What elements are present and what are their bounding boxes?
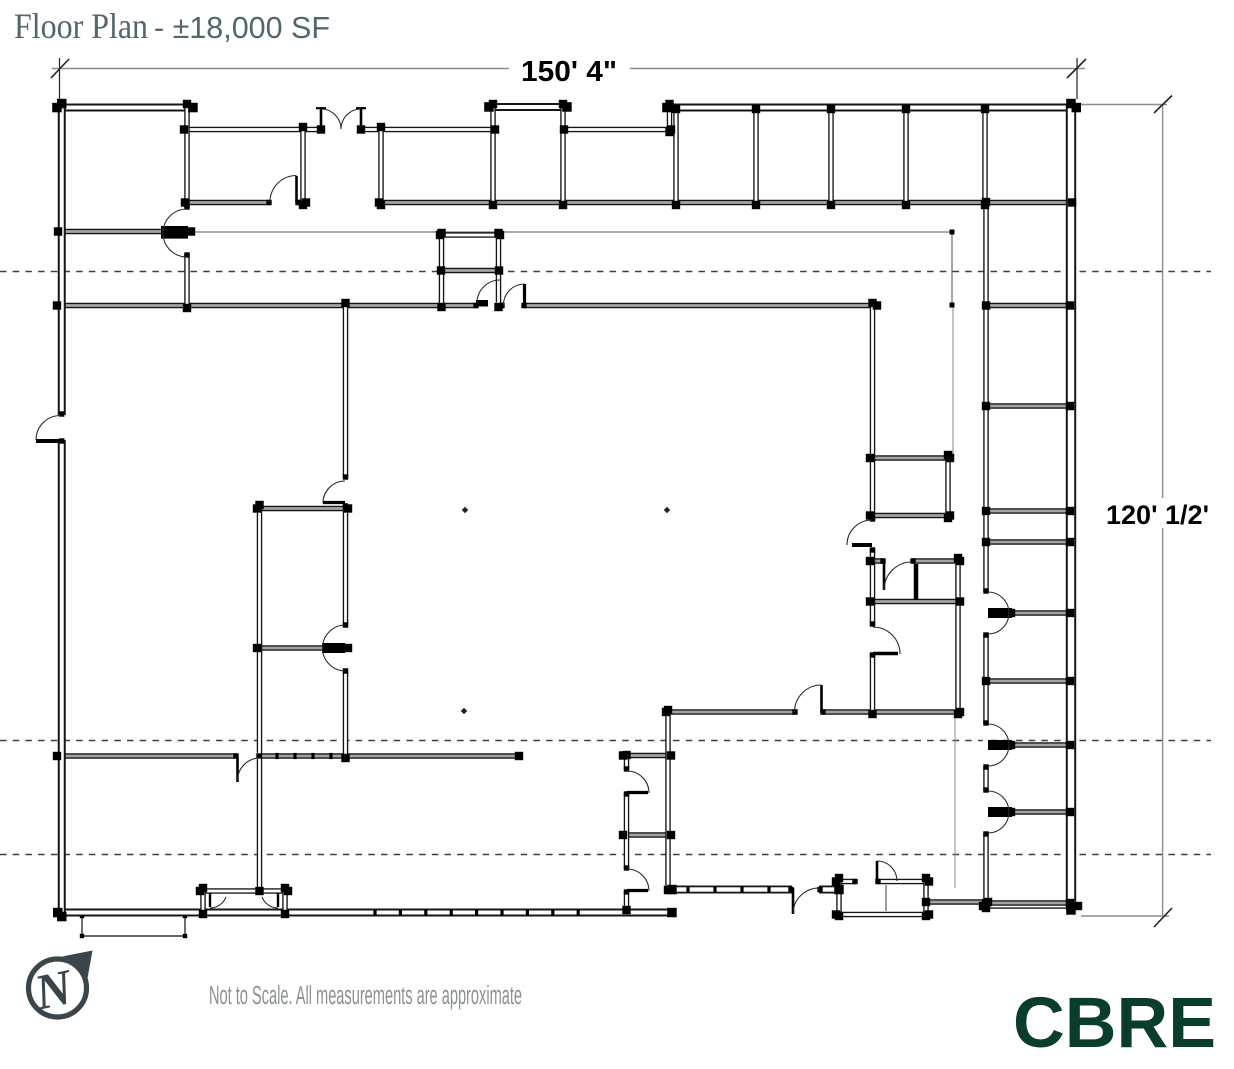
svg-text:Not to Scale. All measurement: Not to Scale. All measurements are appro…: [209, 982, 522, 1010]
svg-text:- ±18,000 SF: - ±18,000 SF: [154, 10, 330, 45]
svg-text:Floor Plan: Floor Plan: [14, 6, 148, 46]
svg-text:120' 1/2': 120' 1/2': [1106, 500, 1209, 530]
svg-text:CBRE: CBRE: [1013, 984, 1216, 1063]
svg-text:150' 4": 150' 4": [521, 56, 617, 88]
